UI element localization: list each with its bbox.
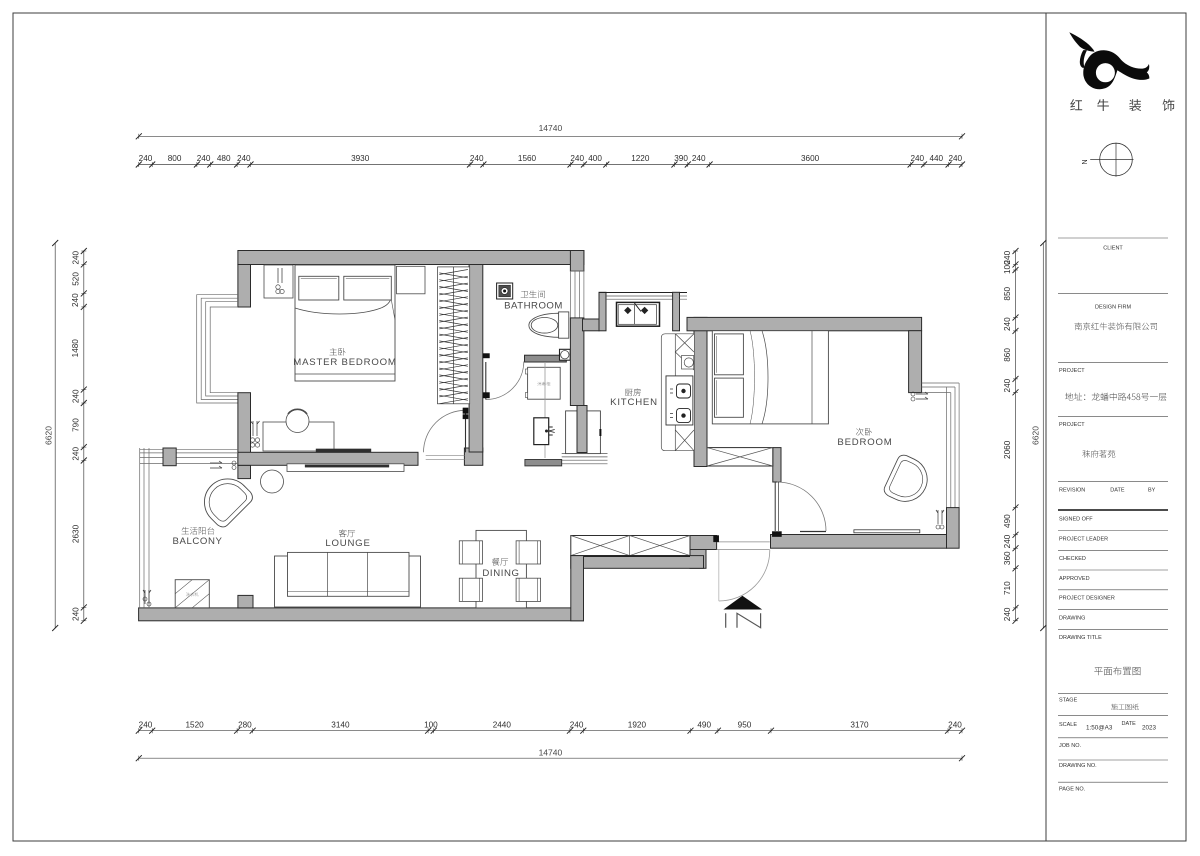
svg-text:240: 240	[139, 154, 153, 163]
svg-text:240: 240	[1003, 534, 1012, 548]
svg-text:14740: 14740	[539, 123, 563, 133]
svg-text:BEDROOM: BEDROOM	[837, 437, 892, 448]
svg-text:BATHROOM: BATHROOM	[504, 301, 563, 312]
svg-text:DRAWING TITLE: DRAWING TITLE	[1059, 635, 1102, 641]
svg-text:DINING: DINING	[482, 568, 519, 579]
svg-text:240: 240	[570, 720, 584, 729]
svg-text:N: N	[1082, 159, 1089, 164]
svg-text:240: 240	[71, 447, 80, 461]
svg-text:MASTER BEDROOM: MASTER BEDROOM	[293, 357, 396, 368]
svg-text:490: 490	[1003, 514, 1012, 528]
svg-text:CLIENT: CLIENT	[1103, 246, 1123, 252]
svg-text:REVISION: REVISION	[1059, 488, 1085, 494]
svg-text:APPROVED: APPROVED	[1059, 576, 1090, 582]
svg-text:STAGE: STAGE	[1059, 697, 1078, 703]
svg-text:100: 100	[1003, 260, 1012, 274]
svg-text:240: 240	[237, 154, 251, 163]
svg-text:PROJECT LEADER: PROJECT LEADER	[1059, 536, 1108, 542]
svg-text:BALCONY: BALCONY	[172, 536, 222, 547]
svg-text:520: 520	[71, 272, 80, 286]
svg-text:240: 240	[71, 250, 80, 264]
svg-text:2023: 2023	[1142, 725, 1157, 732]
svg-text:850: 850	[1003, 286, 1012, 300]
svg-text:DRAWING: DRAWING	[1059, 616, 1085, 622]
svg-text:1:50@A3: 1:50@A3	[1086, 725, 1113, 732]
svg-text:1220: 1220	[631, 154, 650, 163]
svg-text:240: 240	[1003, 378, 1012, 392]
svg-text:240: 240	[197, 154, 211, 163]
svg-text:1920: 1920	[628, 720, 647, 729]
svg-text:DATE: DATE	[1122, 721, 1137, 727]
svg-text:SIGNED OFF: SIGNED OFF	[1059, 517, 1093, 523]
svg-text:DESIGN FIRM: DESIGN FIRM	[1095, 304, 1131, 310]
svg-text:1480: 1480	[71, 339, 80, 358]
svg-text:240: 240	[71, 607, 80, 621]
svg-text:1560: 1560	[518, 154, 537, 163]
svg-text:SCALE: SCALE	[1059, 722, 1077, 728]
svg-text:14740: 14740	[539, 748, 563, 758]
svg-text:PROJECT: PROJECT	[1059, 368, 1085, 374]
svg-text:2630: 2630	[71, 524, 80, 543]
svg-text:BY: BY	[1148, 488, 1156, 494]
svg-text:240: 240	[71, 293, 80, 307]
svg-text:790: 790	[71, 418, 80, 432]
svg-text:3600: 3600	[801, 154, 820, 163]
svg-text:2440: 2440	[493, 720, 512, 729]
svg-text:240: 240	[948, 720, 962, 729]
svg-text:100: 100	[424, 720, 438, 729]
svg-text:860: 860	[1003, 348, 1012, 362]
svg-text:1520: 1520	[185, 720, 204, 729]
svg-text:DATE: DATE	[1110, 488, 1125, 494]
svg-text:DRAWING NO.: DRAWING NO.	[1059, 763, 1097, 769]
svg-text:3930: 3930	[351, 154, 370, 163]
svg-text:280: 280	[238, 720, 252, 729]
svg-text:JOB NO.: JOB NO.	[1059, 743, 1081, 749]
svg-text:240: 240	[1003, 317, 1012, 331]
svg-text:LOUNGE: LOUNGE	[325, 538, 370, 549]
svg-text:950: 950	[738, 720, 752, 729]
svg-text:PROJECT DESIGNER: PROJECT DESIGNER	[1059, 596, 1115, 602]
svg-text:490: 490	[697, 720, 711, 729]
svg-text:240: 240	[470, 154, 484, 163]
svg-text:480: 480	[217, 154, 231, 163]
svg-text:400: 400	[588, 154, 602, 163]
svg-text:240: 240	[570, 154, 584, 163]
svg-text:KITCHEN: KITCHEN	[610, 397, 658, 408]
svg-text:240: 240	[948, 154, 962, 163]
svg-text:6620: 6620	[44, 426, 54, 445]
svg-text:360: 360	[1003, 551, 1012, 565]
svg-text:3140: 3140	[331, 720, 350, 729]
svg-text:6620: 6620	[1031, 426, 1041, 445]
svg-text:800: 800	[168, 154, 182, 163]
svg-text:240: 240	[910, 154, 924, 163]
svg-text:2060: 2060	[1003, 440, 1012, 459]
svg-text:240: 240	[692, 154, 706, 163]
svg-text:240: 240	[71, 389, 80, 403]
svg-text:440: 440	[929, 154, 943, 163]
svg-text:710: 710	[1003, 581, 1012, 595]
svg-text:240: 240	[139, 720, 153, 729]
svg-text:3170: 3170	[850, 720, 869, 729]
svg-text:CHECKED: CHECKED	[1059, 556, 1086, 562]
svg-text:390: 390	[674, 154, 688, 163]
svg-text:PROJECT: PROJECT	[1059, 422, 1085, 428]
svg-text:240: 240	[1003, 607, 1012, 621]
svg-text:PAGE NO.: PAGE NO.	[1059, 786, 1086, 792]
